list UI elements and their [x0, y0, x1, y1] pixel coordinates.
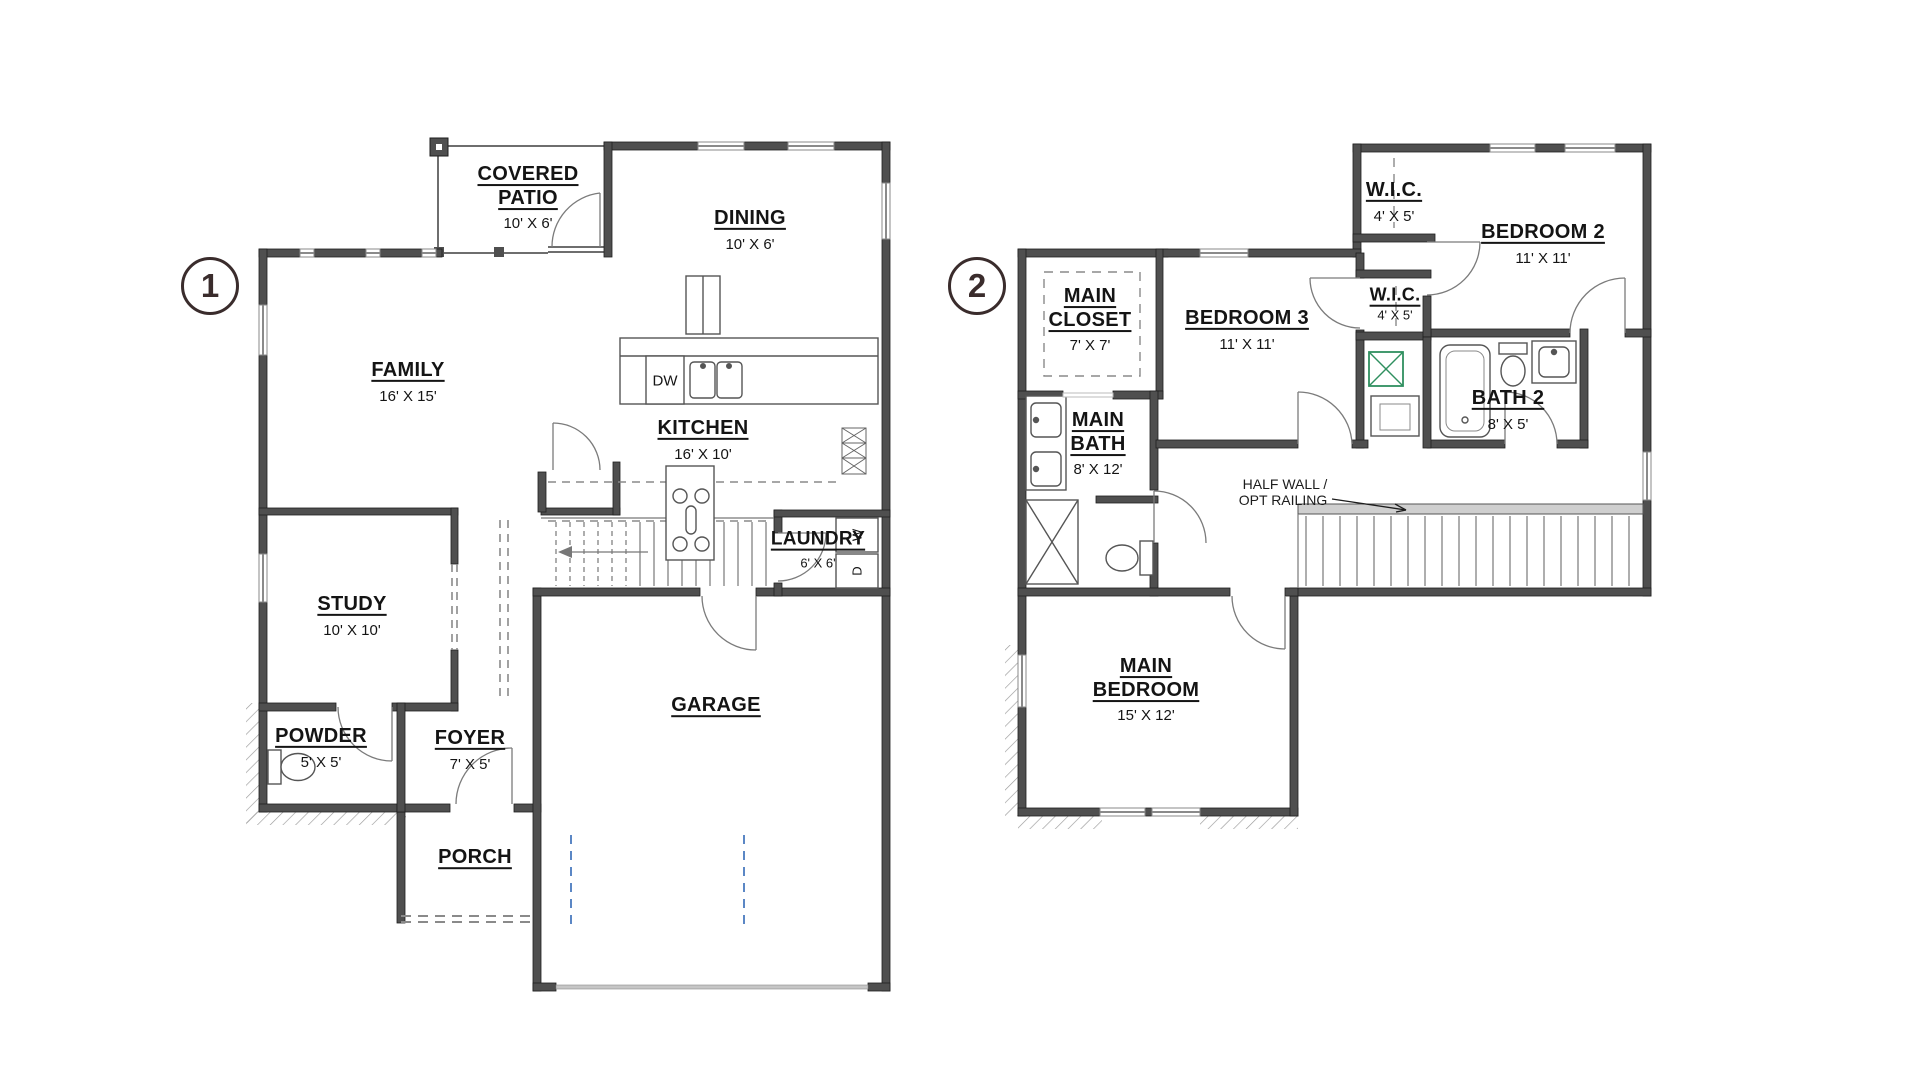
room-label-foyer: FOYER 7' X 5' — [435, 727, 505, 773]
room-label-family: FAMILY 16' X 15' — [371, 359, 444, 405]
plan2-number: 2 — [968, 267, 986, 305]
plan1-number-badge: 1 — [181, 257, 239, 315]
room-label-bedroom-3: BEDROOM 3 11' X 11' — [1185, 307, 1309, 353]
closet-opening-jambs — [1063, 393, 1113, 397]
room-label-bath-2: BATH 2 8' X 5' — [1472, 387, 1545, 433]
stairs-floor2 — [1298, 514, 1629, 588]
bath2-toilet-bowl — [1501, 356, 1525, 386]
plan1-number: 1 — [201, 267, 219, 305]
main-bath-toilet-tank — [1140, 541, 1153, 575]
half-wall-railing — [1298, 504, 1643, 514]
room-label-powder: POWDER 5' X 5' — [275, 725, 367, 771]
room-label-dining: DINING 10' X 6' — [714, 207, 786, 253]
main-bath-toilet-bowl — [1106, 545, 1138, 571]
room-label-study: STUDY 10' X 10' — [317, 593, 386, 639]
room-label-covered-patio: COVERED PATIO 10' X 6' — [472, 163, 584, 233]
dishwasher-label: DW — [653, 373, 678, 390]
room-label-main-closet: MAIN CLOSET 7' X 7' — [1041, 285, 1139, 355]
plan2-number-badge: 2 — [948, 257, 1006, 315]
floorplan-sheet: 1 2 COVERED PATIO 10' X 6' DINING 10' X … — [0, 0, 1920, 1080]
garage-door — [556, 985, 868, 989]
room-label-porch: PORCH — [438, 846, 512, 870]
room-label-wic-1: W.I.C. 4' X 5' — [1366, 179, 1422, 225]
room-label-garage: GARAGE — [671, 694, 761, 718]
stairs-floor1 — [541, 518, 774, 586]
half-wall-note: HALF WALL / OPT RAILING — [1239, 476, 1327, 508]
pantry-shelves — [842, 428, 866, 474]
garage-opt-lines — [571, 835, 744, 925]
dryer-label: D — [850, 566, 865, 575]
room-label-bedroom-2: BEDROOM 2 11' X 11' — [1481, 221, 1605, 267]
room-label-main-bath: MAIN BATH 8' X 12' — [1062, 409, 1134, 479]
room-label-wic-2: W.I.C. 4' X 5' — [1370, 285, 1421, 324]
room-label-main-bedroom: MAIN BEDROOM 15' X 12' — [1083, 655, 1209, 725]
room-label-kitchen: KITCHEN 16' X 10' — [658, 417, 749, 463]
porch-open-edge — [401, 916, 537, 922]
floorplan-linework — [0, 0, 1920, 1080]
washer-label: W — [850, 529, 865, 541]
bath2-toilet-tank — [1499, 343, 1527, 354]
hall-utility-fixtures — [1369, 352, 1419, 436]
